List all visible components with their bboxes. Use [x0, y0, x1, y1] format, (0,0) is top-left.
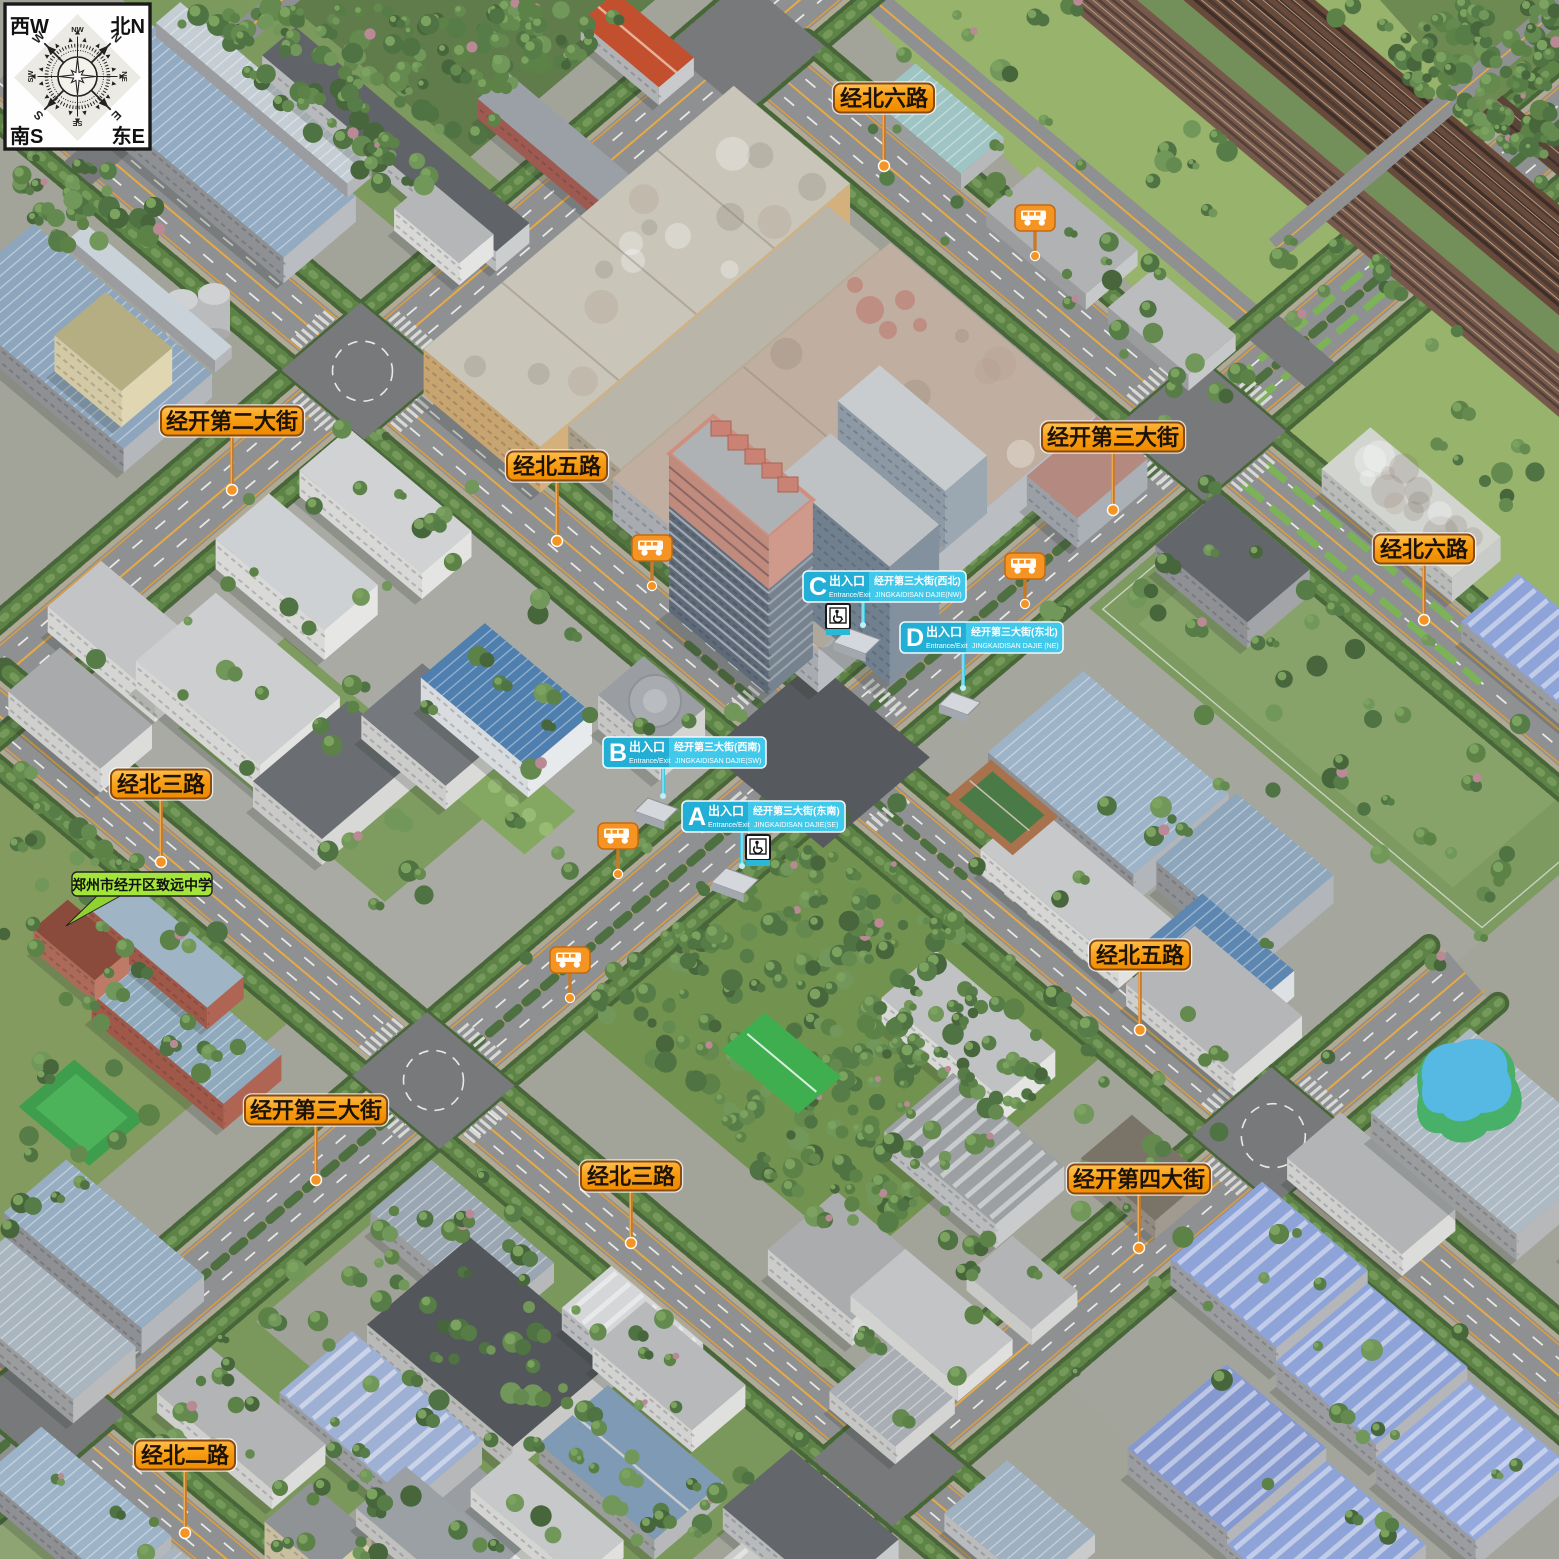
svg-text:经开第三大街: 经开第三大街: [1047, 425, 1179, 450]
svg-text:东E: 东E: [112, 124, 145, 148]
svg-text:SW: SW: [26, 70, 35, 83]
svg-text:经北六路: 经北六路: [1380, 537, 1469, 562]
svg-text:出入口: 出入口: [829, 573, 865, 588]
svg-text:Entrance/Exit: Entrance/Exit: [829, 592, 871, 599]
svg-text:南S: 南S: [10, 125, 43, 148]
svg-text:出入口: 出入口: [629, 739, 665, 754]
svg-text:A: A: [688, 803, 706, 831]
svg-text:JINGKAIDISAN DAJIE(SE): JINGKAIDISAN DAJIE(SE): [754, 822, 838, 829]
svg-text:B: B: [609, 739, 627, 767]
svg-text:NW: NW: [71, 25, 84, 34]
svg-text:北N: 北N: [111, 15, 145, 38]
svg-text:Entrance/Exit: Entrance/Exit: [926, 643, 968, 650]
svg-text:经开第二大街: 经开第二大街: [166, 409, 298, 434]
svg-text:JINGKAIDISAN DAJIE(SW): JINGKAIDISAN DAJIE(SW): [675, 758, 761, 765]
svg-text:郑州市经开区致远中学: 郑州市经开区致远中学: [72, 877, 212, 893]
svg-text:NE: NE: [120, 71, 129, 81]
svg-text:出入口: 出入口: [926, 624, 962, 639]
svg-text:经北三路: 经北三路: [117, 772, 206, 797]
svg-text:D: D: [906, 624, 924, 652]
svg-text:经北六路: 经北六路: [840, 86, 929, 111]
svg-text:经开第三大街(西南): 经开第三大街(西南): [674, 741, 761, 754]
svg-text:经北五路: 经北五路: [513, 454, 602, 479]
svg-text:Entrance/Exit: Entrance/Exit: [708, 822, 750, 829]
svg-text:经北二路: 经北二路: [141, 1443, 230, 1468]
svg-text:经开第三大街(西北): 经开第三大街(西北): [874, 575, 961, 588]
svg-text:经开第三大街(东北): 经开第三大街(东北): [971, 626, 1058, 639]
svg-text:经北五路: 经北五路: [1096, 943, 1185, 968]
svg-text:经开第三大街: 经开第三大街: [250, 1098, 382, 1123]
svg-text:经开第四大街: 经开第四大街: [1073, 1167, 1205, 1192]
svg-text:西W: 西W: [10, 16, 49, 38]
svg-text:经开第三大街(东南): 经开第三大街(东南): [753, 805, 840, 818]
svg-text:Entrance/Exit: Entrance/Exit: [629, 758, 671, 765]
svg-text:JINGKAIDISAN DAJIE(NW): JINGKAIDISAN DAJIE(NW): [875, 592, 962, 599]
svg-text:经北三路: 经北三路: [587, 1164, 676, 1189]
svg-text:SE: SE: [72, 119, 82, 128]
svg-text:出入口: 出入口: [708, 803, 744, 818]
svg-text:C: C: [809, 573, 827, 601]
svg-text:JINGKAIDISAN DAJIE (NE): JINGKAIDISAN DAJIE (NE): [972, 643, 1059, 650]
